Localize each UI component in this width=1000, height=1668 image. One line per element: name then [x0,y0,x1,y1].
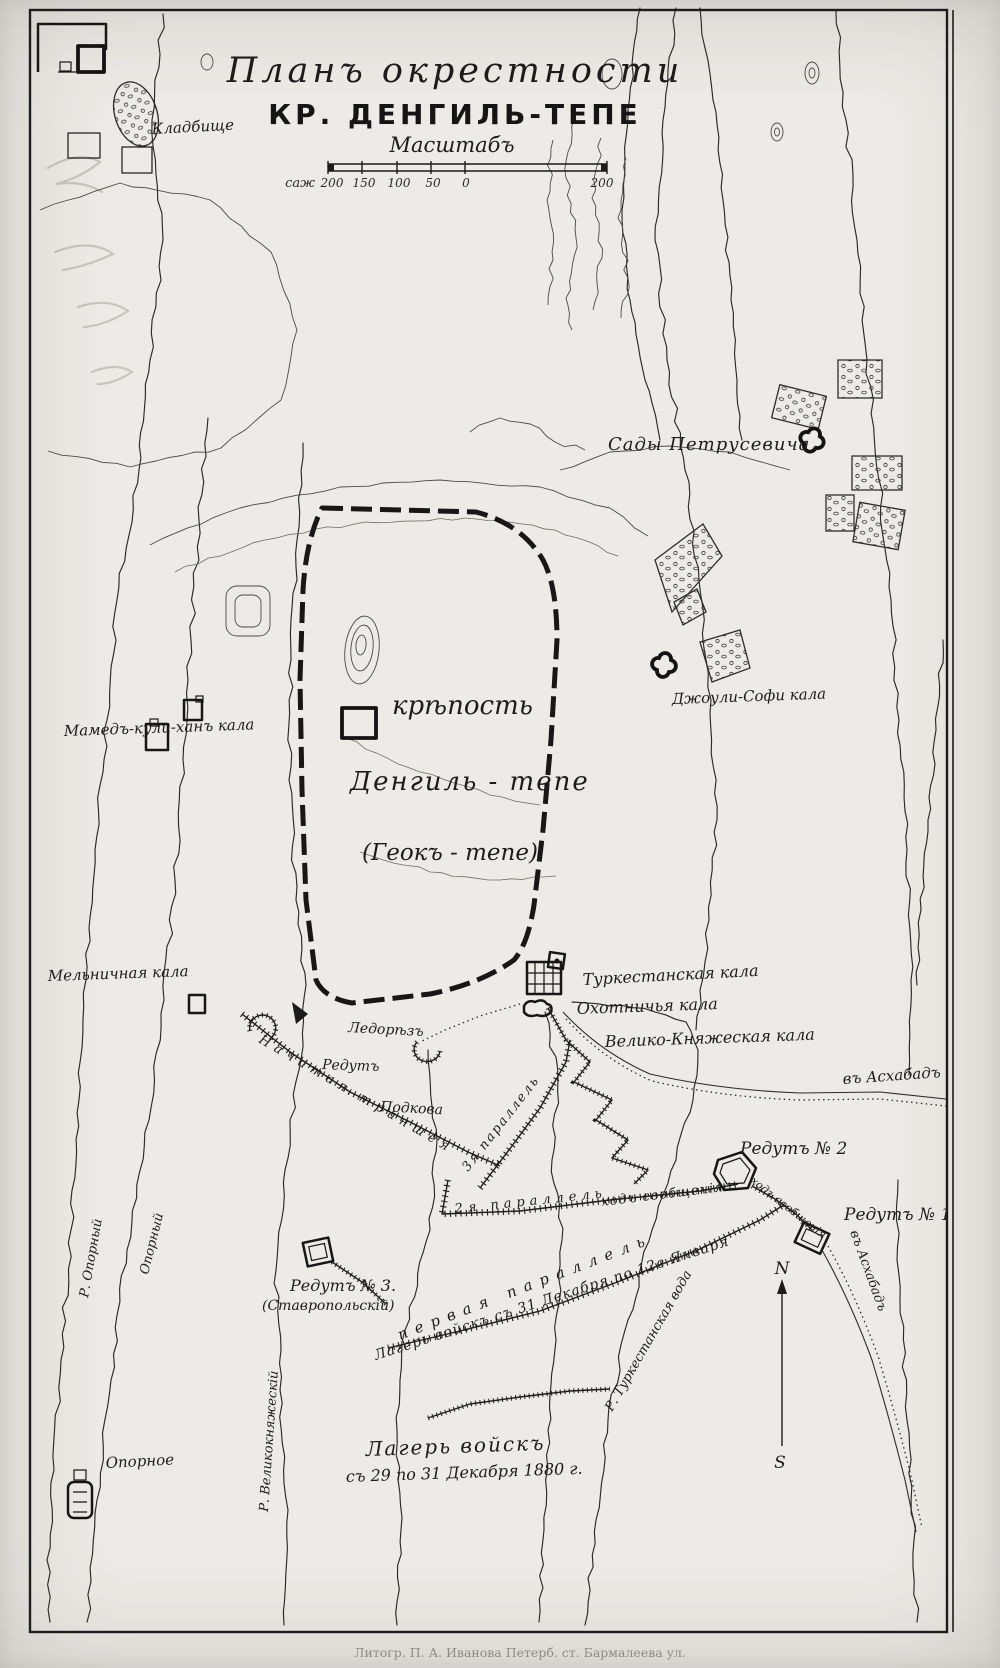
fortress-word-label: крѣпость [392,691,533,721]
river-line [87,418,208,1622]
contour-line [547,140,554,305]
cemetery-grove [106,76,166,152]
river-line [572,1002,698,1625]
khod-soobshcheniya-label: ходъ сообщенія [601,1180,725,1210]
camp2-label-line1: Лагерь войскъ [364,1431,545,1461]
scale-heading: Масштабъ [389,133,515,157]
veliko-kala-icon [527,962,561,994]
scale-tick-0: 0 [462,176,470,190]
oporny-label: Опорный [137,1211,167,1275]
river-line [700,8,742,440]
opornoe-fort-icon [68,1470,92,1518]
river-line [916,640,943,985]
melnichnaya-kala-icon [189,995,205,1013]
compass-south-label: S [774,1453,786,1473]
cemetery-compound [38,24,166,173]
map-canvas: N S саж 200 150 100 50 0 200 Планъ окрес… [0,0,1000,1668]
contour-line [565,118,577,330]
ledorez-label: Ледорѣзъ [347,1020,424,1040]
scale-tick-150: 150 [353,176,376,190]
contour-line [40,183,297,467]
camp2-label-line2: съ 29 по 31 Декабря 1880 г. [345,1459,582,1486]
lithographer-caption: Литогр. П. А. Иванова Петерб. ст. Бармал… [354,1645,686,1660]
river-line [655,8,717,1030]
scale-bar: саж 200 150 100 50 0 200 [285,161,614,191]
r-oporny-label: Р. Опорный [77,1218,106,1300]
fortress-wall [300,508,557,1003]
scanned-map-page: N S саж 200 150 100 50 0 200 Планъ окрес… [0,0,1000,1668]
scale-tick-200: 200 [320,176,344,190]
mound-contours [226,586,382,686]
petrusevich-label: Сады Петрусевича [608,434,810,455]
map-subtitle: КР. ДЕНГИЛЬ-ТЕПЕ [268,98,642,131]
fortress-name-label: Денгиль - тепе [349,767,590,797]
veliko-kala-label: Велико-Княжеская кала [603,1025,815,1051]
redut3-sub-label: (Ставропольскій) [262,1298,394,1314]
khod-soobshcheniya2-label: ходъ сообщенія [748,1174,829,1241]
okhotnichya-kala-icon [524,1000,552,1016]
pervaya-parallel-label: первая параллель [395,1230,655,1344]
map-title: Планъ окрестности [226,51,684,91]
redoubt-icons [303,1152,830,1266]
opornoe-label: Опорное [105,1450,174,1472]
nachataya-label: Начатая траншея [255,1032,457,1157]
redut3-icon [303,1238,333,1267]
redut1-label: Редутъ № 1 [843,1205,951,1225]
scale-tick-50: 50 [425,176,441,190]
citadel-square-icon [342,708,376,738]
dzhouli-fort-icon [650,651,678,679]
river-line [47,14,164,1622]
askhabad-east-label: въ Асхабадъ [842,1063,941,1088]
pencil-scribbles [48,157,132,384]
scale-tick-100: 100 [388,176,411,190]
redut2-label: Редутъ № 2 [739,1139,847,1159]
dzhouli-label: Джоули-Софи кала [671,685,827,708]
scale-right-end: 200 [590,176,614,190]
ledorez-icon [292,1002,308,1024]
fortress-alt-label: (Геокъ - тепе) [362,840,538,866]
compass: N S [774,1259,791,1473]
dzhouli-gardens [650,524,750,682]
contour-line [618,158,629,318]
scale-unit: саж [285,176,315,191]
place-labels: Кладбище Сады Петрусевича крѣпость Денги… [47,116,952,1514]
mamed-kala-label: Мамедъ-кули-ханъ кала [63,715,255,740]
redut3-label: Редутъ № 3. [289,1276,396,1295]
map-frame [30,10,953,1632]
compass-north-label: N [774,1259,791,1279]
river-line [897,1180,919,1622]
rivers-layer [40,8,943,1625]
cemetery-label: Кладбище [150,116,234,138]
compass-arrow-icon [777,1279,787,1294]
r-turkestan-label: Р. Туркестанская вода [602,1268,695,1415]
melnichnaya-label: Мельничная кала [47,962,189,985]
askhabad-south-label: въ Асхабадъ [846,1228,889,1313]
contour-line [175,518,618,572]
r-veliko-label: Р. Великокняжескій [257,1370,282,1513]
okhotnichya-label: Охотничья кала [576,994,718,1018]
contour-line [470,418,585,450]
turkestanskaya-label: Туркестанская кала [582,961,759,989]
kala-icons [68,696,565,1518]
